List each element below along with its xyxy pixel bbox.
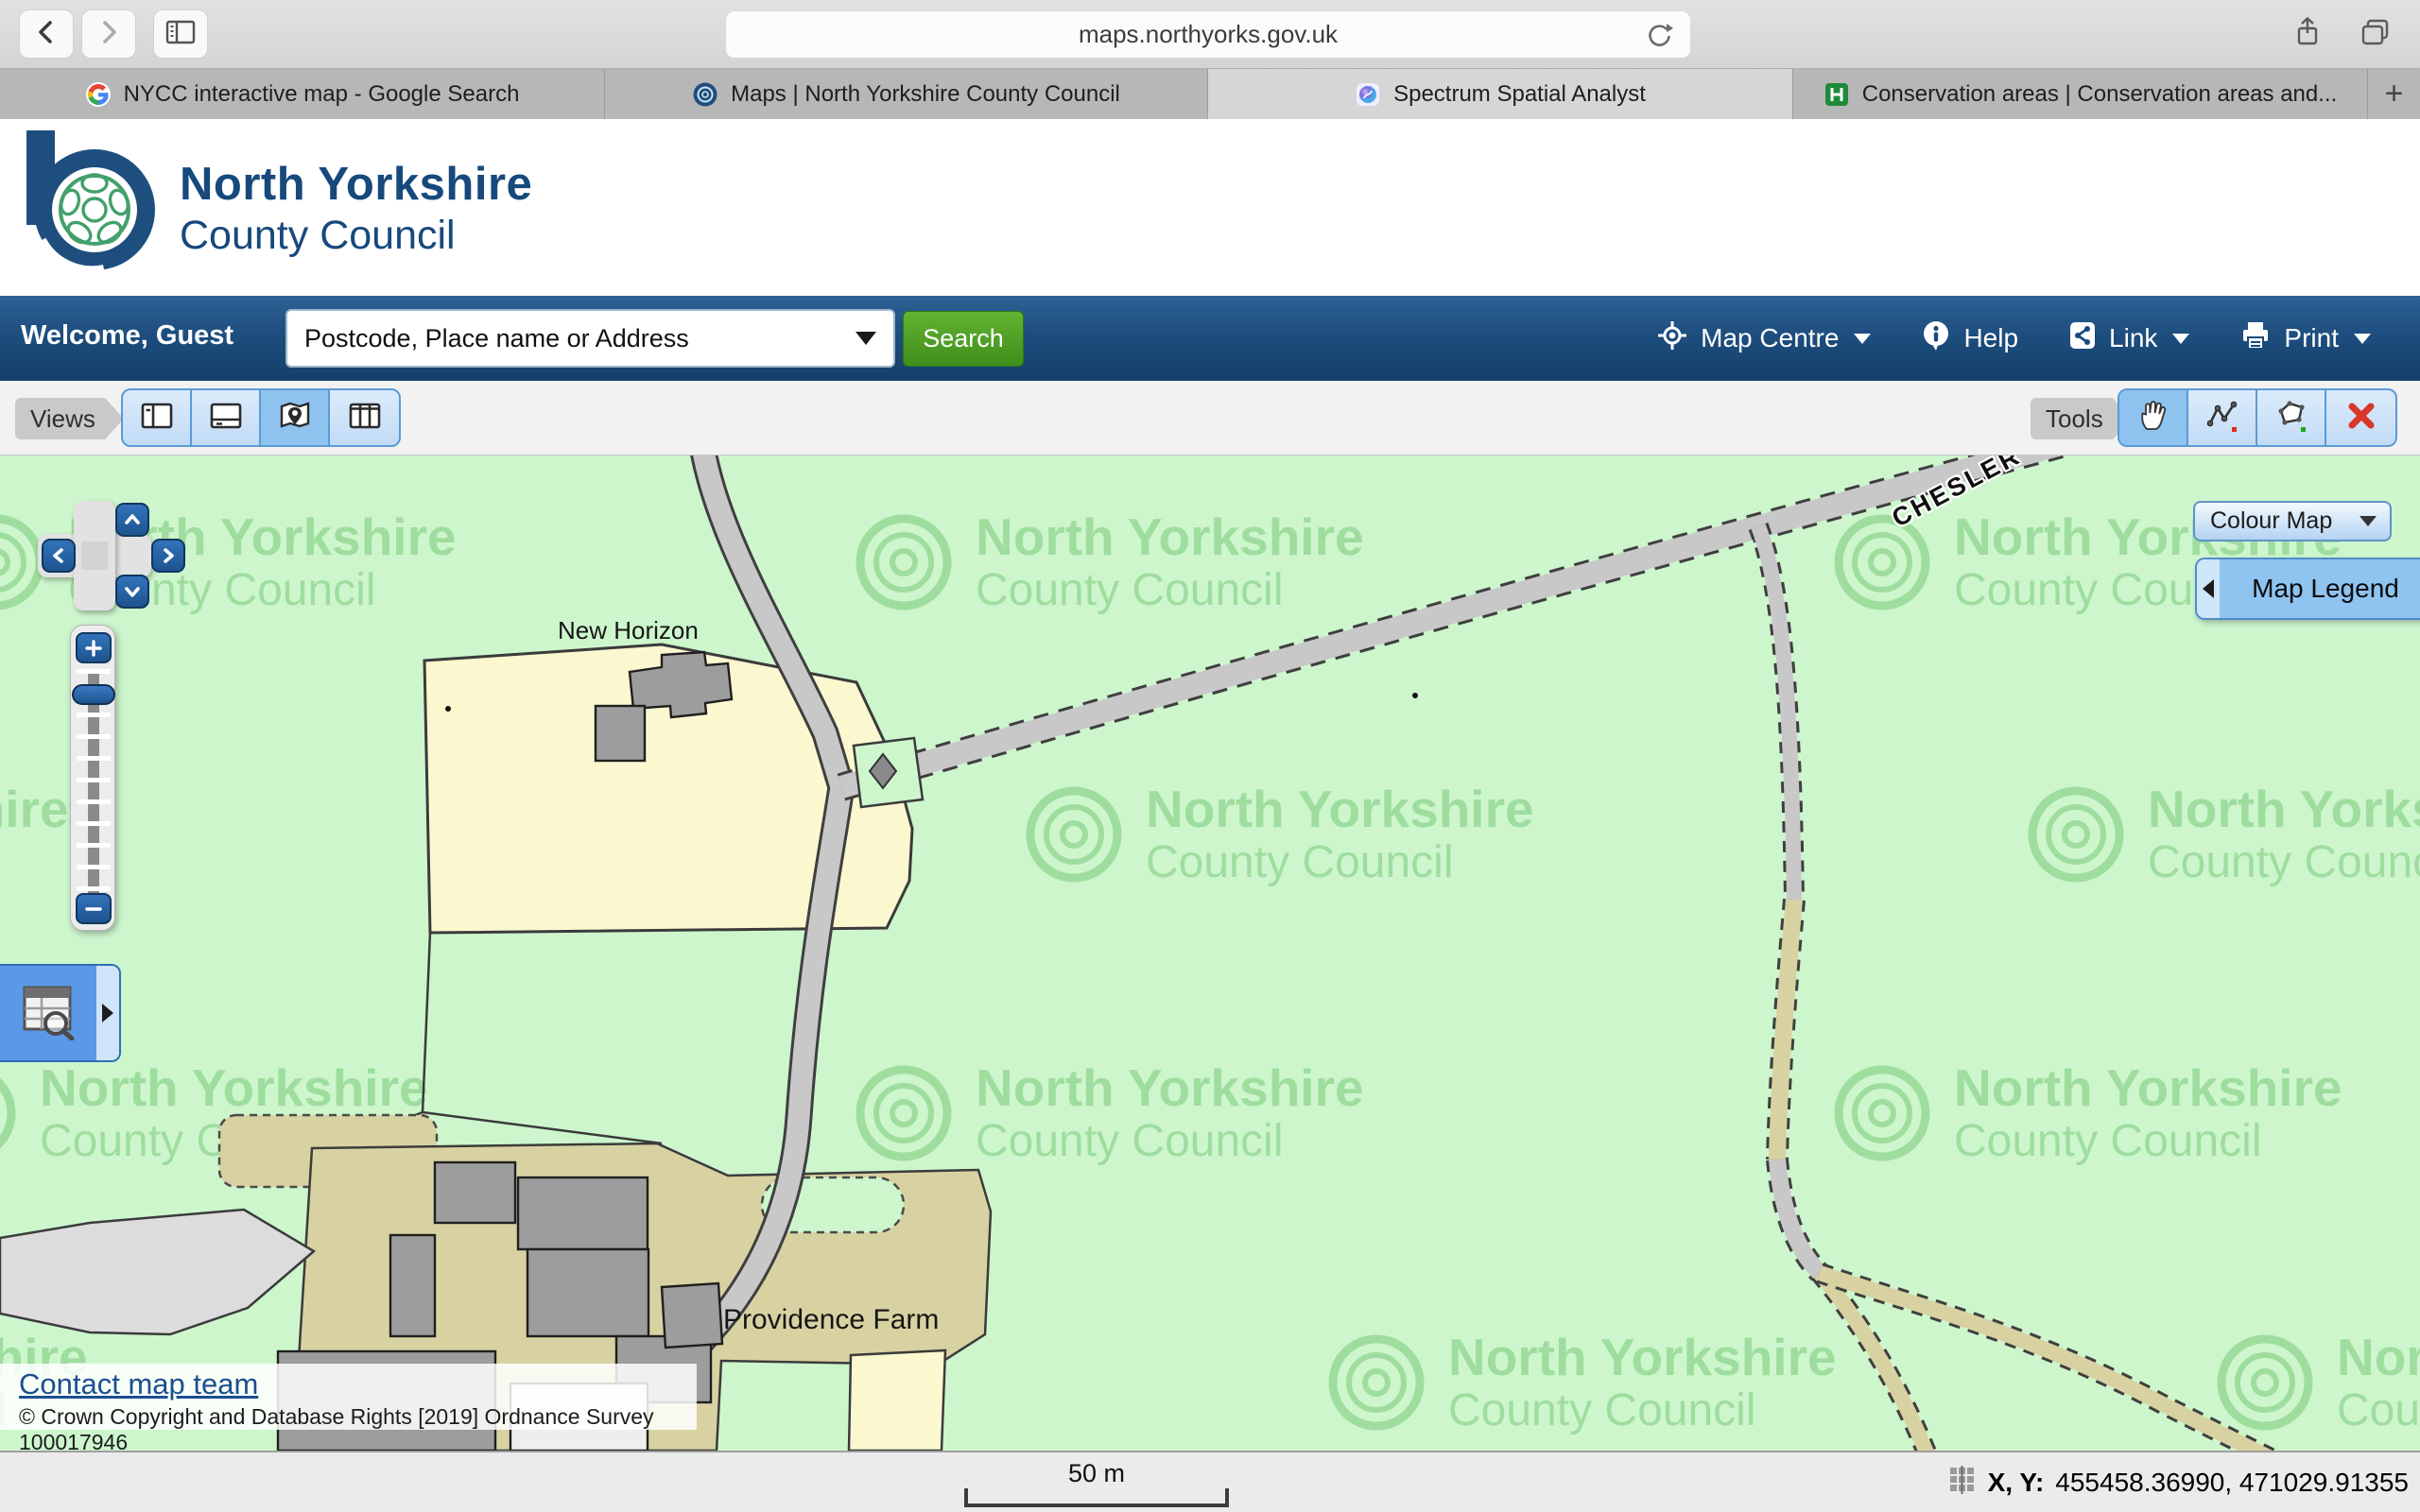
tool-clear-button[interactable] <box>2326 390 2395 445</box>
nycc-rose-icon <box>692 81 718 108</box>
map-view-icon <box>277 400 313 437</box>
forward-icon <box>95 18 123 51</box>
tab-title: Spectrum Spatial Analyst <box>1393 81 1646 108</box>
search-input[interactable]: Postcode, Place name or Address <box>285 309 895 368</box>
zoom-slider[interactable] <box>70 625 115 931</box>
link-button[interactable]: Link <box>2069 320 2189 357</box>
data-panel-toggle[interactable] <box>0 966 96 1060</box>
pan-right-button[interactable] <box>151 539 185 573</box>
pan-left-button[interactable] <box>42 539 76 573</box>
contact-map-team-link[interactable]: Contact map team <box>19 1367 258 1400</box>
site-header: North Yorkshire County Council <box>0 119 2420 296</box>
view-bottom-panel-button[interactable] <box>192 390 261 445</box>
reload-icon[interactable] <box>1645 21 1675 56</box>
tab-overview-button[interactable] <box>2348 9 2403 59</box>
info-icon <box>1922 320 1950 357</box>
url-text: maps.northyorks.gov.uk <box>1079 20 1338 49</box>
sidebar-icon <box>164 18 197 51</box>
chevron-down-icon <box>2354 334 2371 344</box>
address-bar[interactable]: maps.northyorks.gov.uk <box>725 10 1691 59</box>
tool-measure-line-button[interactable] <box>2188 390 2257 445</box>
link-label: Link <box>2109 323 2157 353</box>
coords-value: 455458.36990, 471029.91355 <box>2055 1468 2409 1498</box>
browser-toolbar: maps.northyorks.gov.uk <box>0 0 2420 69</box>
nycc-rose-logo-icon <box>13 127 164 290</box>
map-attribution: Contact map team © Crown Copyright and D… <box>0 1364 697 1430</box>
table-search-icon <box>19 982 78 1045</box>
navbar-actions: Map Centre Help Link Print <box>1657 296 2371 381</box>
pan-up-button[interactable] <box>115 503 149 537</box>
plus-icon: + <box>2385 76 2404 112</box>
share-icon <box>2292 16 2323 53</box>
clear-x-icon <box>2345 400 2377 437</box>
map-centre-label: Map Centre <box>1701 323 1839 353</box>
back-icon <box>32 18 60 51</box>
place-label-providence-farm: Providence Farm <box>723 1304 939 1336</box>
map-legend-tab[interactable]: Map Legend <box>2195 558 2420 620</box>
view-columns-button[interactable] <box>330 390 399 445</box>
colour-map-dropdown[interactable]: Colour Map <box>2193 501 2392 541</box>
tab-spectrum-spatial-analyst[interactable]: Spectrum Spatial Analyst <box>1208 69 1793 119</box>
chevron-left-icon <box>2203 579 2214 598</box>
logo-line2: County Council <box>180 213 532 259</box>
pan-down-button[interactable] <box>115 575 149 609</box>
chevron-down-icon <box>2359 516 2377 526</box>
share-button[interactable] <box>2280 9 2335 59</box>
layout-bottom-panel-icon <box>208 401 244 436</box>
print-button[interactable]: Print <box>2240 320 2371 357</box>
tab-conservation-areas[interactable]: Conservation areas | Conservation areas … <box>1793 69 2368 119</box>
help-button[interactable]: Help <box>1922 320 2018 357</box>
measure-area-icon <box>2274 399 2308 438</box>
colour-map-label: Colour Map <box>2195 507 2359 535</box>
views-tools-toolbar: Views Tools <box>0 381 2420 455</box>
logo-line1: North Yorkshire <box>180 158 532 211</box>
junction-feature <box>854 738 923 807</box>
sidebar-toggle-button[interactable] <box>153 9 208 59</box>
tools-tag: Tools <box>2031 398 2113 439</box>
zoom-out-button[interactable] <box>76 893 112 924</box>
pan-control <box>38 501 151 610</box>
tool-measure-area-button[interactable] <box>2257 390 2326 445</box>
tabs-overview-icon <box>2359 17 2392 52</box>
application-window: maps.northyorks.gov.uk NYCC interactive … <box>0 0 2420 1512</box>
logo-text: North Yorkshire County Council <box>180 158 532 259</box>
tab-title: Conservation areas | Conservation areas … <box>1862 81 2338 108</box>
pan-pad-center <box>81 541 108 570</box>
coordinates-readout: X, Y: 455458.36990, 471029.91355 <box>1948 1452 2409 1512</box>
scale-bar <box>964 1488 1229 1507</box>
chevron-down-icon <box>1854 334 1871 344</box>
nycc-logo: North Yorkshire County Council <box>13 127 532 290</box>
share-link-icon <box>2069 320 2096 357</box>
new-tab-button[interactable]: + <box>2368 69 2420 119</box>
scale-label: 50 m <box>964 1459 1229 1488</box>
tab-title: Maps | North Yorkshire County Council <box>731 81 1120 108</box>
sharepoint-icon <box>1824 81 1850 108</box>
forward-button[interactable] <box>81 9 136 59</box>
map-features <box>0 455 2420 1451</box>
tab-title: NYCC interactive map - Google Search <box>124 81 520 108</box>
grid-icon <box>1948 1466 1977 1499</box>
print-label: Print <box>2284 323 2339 353</box>
chevron-down-icon <box>2172 334 2189 344</box>
map-centre-icon <box>1657 320 1687 357</box>
copyright-text: © Crown Copyright and Database Rights [2… <box>19 1404 697 1451</box>
zoom-level-handle[interactable] <box>72 684 115 705</box>
pan-hand-icon <box>2136 399 2170 438</box>
layout-columns-icon <box>347 401 383 436</box>
zoom-in-button[interactable] <box>76 632 112 663</box>
back-button[interactable] <box>19 9 74 59</box>
chevron-right-icon <box>102 1004 113 1022</box>
data-panel-expand-strip[interactable] <box>96 966 119 1060</box>
main-navbar: Welcome, Guest Postcode, Place name or A… <box>0 296 2420 381</box>
welcome-text: Welcome, Guest <box>21 320 233 352</box>
tab-google-search[interactable]: NYCC interactive map - Google Search <box>0 69 605 119</box>
status-bar: 50 m X, Y: 455458.36990, 471029.91355 <box>0 1451 2420 1512</box>
data-panel-tab[interactable] <box>0 964 121 1062</box>
search-button[interactable]: Search <box>903 311 1024 367</box>
layout-left-panel-icon <box>139 401 175 436</box>
views-tag: Views <box>15 398 105 439</box>
tool-pan-button[interactable] <box>2119 390 2188 445</box>
map-centre-button[interactable]: Map Centre <box>1657 320 1871 357</box>
chevron-down-icon <box>856 332 876 345</box>
printer-icon <box>2240 320 2271 357</box>
view-map-button[interactable] <box>261 390 330 445</box>
tab-nycc-maps[interactable]: Maps | North Yorkshire County Council <box>605 69 1208 119</box>
tab-strip: NYCC interactive map - Google Search Map… <box>0 69 2420 119</box>
spectrum-icon <box>1355 81 1381 108</box>
view-left-panel-button[interactable] <box>123 390 192 445</box>
map-canvas[interactable]: North YorkshireCounty Council North York… <box>0 455 2420 1451</box>
map-legend-label: Map Legend <box>2220 559 2420 618</box>
search-placeholder: Postcode, Place name or Address <box>287 324 856 353</box>
help-label: Help <box>1963 323 2018 353</box>
tools-button-group <box>2117 388 2397 447</box>
legend-expand-strip[interactable] <box>2197 559 2220 618</box>
views-button-group <box>121 388 401 447</box>
coords-label: X, Y: <box>1988 1468 2045 1498</box>
place-label-new-horizon: New Horizon <box>558 616 699 645</box>
measure-line-icon <box>2205 399 2239 438</box>
google-icon <box>85 81 112 108</box>
